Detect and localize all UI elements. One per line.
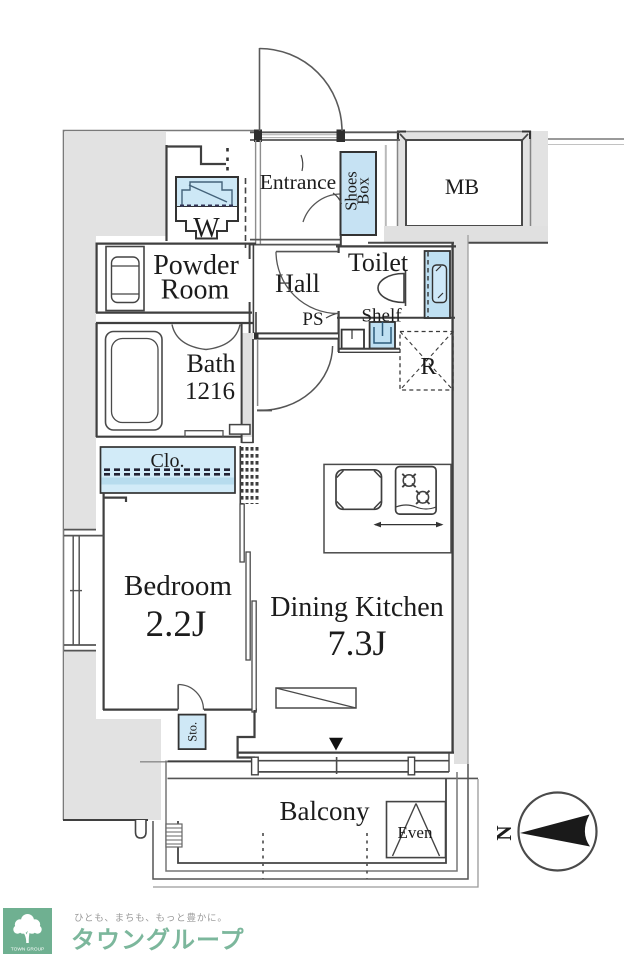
svg-text:Room: Room — [161, 275, 230, 306]
svg-text:MB: MB — [445, 174, 479, 199]
svg-text:7.3J: 7.3J — [327, 623, 386, 663]
svg-text:2.2J: 2.2J — [146, 604, 207, 645]
svg-text:ひとも、まちも、もっと豊かに。: ひとも、まちも、もっと豊かに。 — [74, 912, 228, 924]
svg-text:タウングループ: タウングループ — [71, 927, 245, 954]
svg-text:Sto.: Sto. — [186, 722, 200, 742]
svg-text:Clo.: Clo. — [151, 450, 185, 472]
svg-text:R: R — [420, 354, 436, 380]
svg-text:Balcony: Balcony — [280, 796, 370, 826]
svg-text:N: N — [492, 825, 516, 840]
svg-text:Toilet: Toilet — [348, 248, 409, 277]
svg-text:Bath: Bath — [186, 349, 235, 378]
svg-text:Box: Box — [353, 177, 372, 205]
svg-text:Hall: Hall — [275, 269, 320, 298]
svg-text:PS: PS — [302, 309, 323, 330]
svg-text:Bedroom: Bedroom — [124, 570, 232, 602]
svg-text:Dining Kitchen: Dining Kitchen — [270, 592, 443, 623]
svg-text:Entrance: Entrance — [260, 170, 336, 194]
svg-text:TOWN GROUP: TOWN GROUP — [11, 947, 45, 953]
svg-text:W: W — [193, 213, 220, 244]
svg-text:1216: 1216 — [185, 378, 235, 405]
svg-text:Even: Even — [398, 823, 433, 842]
